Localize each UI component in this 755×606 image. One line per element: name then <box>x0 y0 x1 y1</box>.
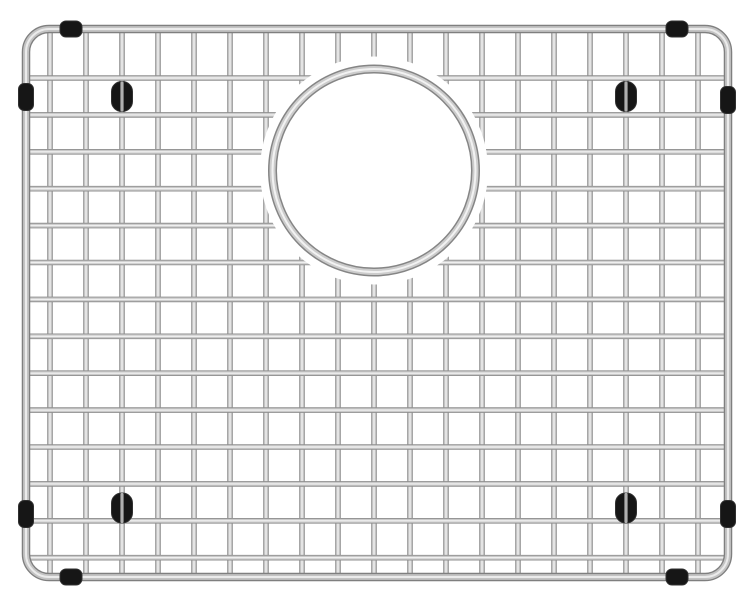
sink-grid-illustration <box>0 0 755 606</box>
rubber-bumper-right <box>721 87 736 114</box>
drain-opening-cutout <box>260 57 488 285</box>
rubber-bumper-bottom <box>60 569 82 585</box>
sink-grid-svg <box>0 0 755 606</box>
rubber-bumper-right <box>721 501 736 528</box>
rubber-bumper-top <box>666 21 688 37</box>
rubber-bumper-bottom <box>666 569 688 585</box>
sink-grid-product-photo <box>0 0 755 606</box>
rubber-bumper-left <box>19 84 34 111</box>
rubber-bumper-left <box>19 501 34 528</box>
rubber-bumper-top <box>60 21 82 37</box>
